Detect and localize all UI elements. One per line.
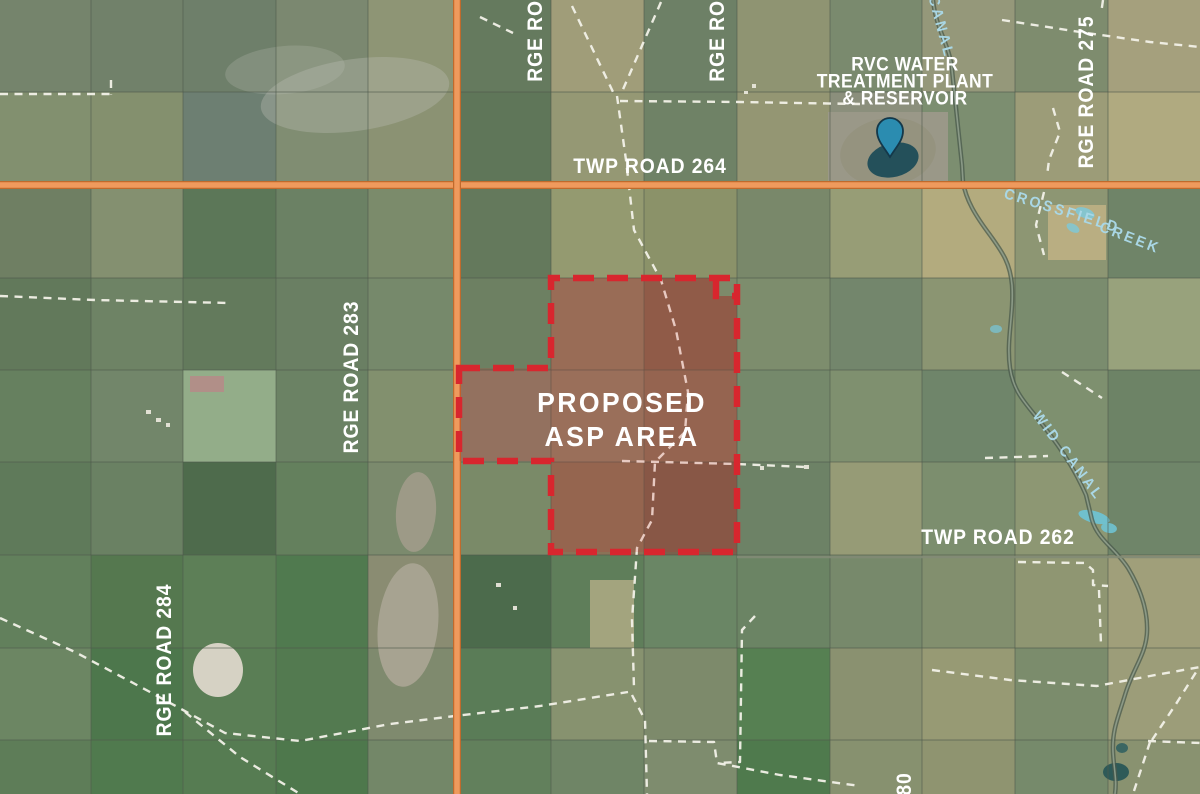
field-parcel (922, 648, 1015, 740)
field-parcel (1108, 648, 1200, 740)
label-rge-road-top-left: RGE ROAD (524, 0, 548, 82)
field-parcel (0, 555, 91, 648)
field-parcel (830, 370, 922, 462)
field-parcel (456, 185, 551, 278)
field-parcel (91, 185, 183, 278)
field-parcel (1015, 740, 1108, 794)
field-parcel (276, 740, 368, 794)
field-parcel (830, 648, 922, 740)
field-parcel (183, 462, 276, 555)
field-parcel (1108, 555, 1200, 648)
field-parcel (276, 555, 368, 648)
terrain-blob (990, 325, 1002, 333)
label-twp-road-264: TWP ROAD 264 (573, 155, 726, 179)
label-rge-road-top-right: RGE ROAD (706, 0, 730, 82)
farmstead-dot (166, 423, 170, 427)
label-rvc-water-treatment: RVC WATER TREATMENT PLANT & RESERVOIR (817, 57, 994, 108)
field-parcel (91, 92, 183, 185)
field-parcel (737, 185, 830, 278)
farmstead-dot (496, 583, 501, 587)
field-parcel (551, 740, 644, 794)
field-parcel (737, 462, 830, 555)
rvc-line-3: & RESERVOIR (817, 91, 994, 108)
field-parcel (456, 92, 551, 185)
field-parcel (830, 278, 922, 370)
field-parcel (276, 462, 368, 555)
terrain-patch (590, 580, 634, 648)
field-parcel (183, 185, 276, 278)
label-rge-road-bottom-fragment: 80 (893, 772, 917, 794)
field-parcel (922, 370, 1015, 462)
field-parcel (0, 0, 91, 92)
satellite-map[interactable]: TWP ROAD 264 TWP ROAD 262 RGE ROAD 283 R… (0, 0, 1200, 794)
field-parcel (830, 185, 922, 278)
terrain-patch (190, 376, 224, 392)
field-parcel (1108, 462, 1200, 555)
field-parcel (91, 0, 183, 92)
field-parcel (0, 740, 91, 794)
field-parcel (368, 740, 456, 794)
field-parcel (830, 462, 922, 555)
field-parcel (91, 462, 183, 555)
field-parcel (1015, 648, 1108, 740)
field-parcel (644, 185, 737, 278)
asp-line-2: ASP AREA (537, 420, 707, 454)
field-parcel (456, 462, 551, 555)
field-parcel (737, 555, 830, 648)
farmstead-dot (156, 418, 161, 422)
field-parcel (0, 278, 91, 370)
field-parcel (91, 740, 183, 794)
field-parcel (183, 740, 276, 794)
field-parcel (830, 555, 922, 648)
farmstead-dot (744, 91, 748, 94)
field-parcel (91, 278, 183, 370)
field-parcel (0, 185, 91, 278)
label-twp-road-262: TWP ROAD 262 (921, 526, 1074, 550)
field-parcel (183, 555, 276, 648)
field-parcel (551, 648, 644, 740)
field-parcel (1108, 92, 1200, 185)
field-parcel (1108, 278, 1200, 370)
terrain-blob (193, 643, 243, 697)
field-parcel (922, 555, 1015, 648)
field-parcel (737, 370, 830, 462)
farmstead-dot (804, 465, 809, 469)
field-parcel (368, 185, 456, 278)
field-parcel (644, 648, 737, 740)
field-parcel (276, 648, 368, 740)
field-parcel (368, 278, 456, 370)
field-parcel (737, 278, 830, 370)
field-parcel (456, 278, 551, 370)
field-parcel (91, 370, 183, 462)
terrain-blob (1116, 743, 1128, 753)
label-proposed-asp-area: PROPOSED ASP AREA (537, 386, 707, 454)
field-parcel (1108, 0, 1200, 92)
label-rge-road-284: RGE ROAD 284 (153, 584, 177, 737)
field-parcel (456, 648, 551, 740)
label-rge-road-283: RGE ROAD 283 (340, 301, 364, 454)
field-parcel (183, 278, 276, 370)
field-parcel (922, 740, 1015, 794)
field-parcel (276, 185, 368, 278)
asp-line-1: PROPOSED (537, 386, 707, 420)
farmstead-dot (760, 466, 764, 470)
field-parcel (0, 462, 91, 555)
field-parcel (737, 648, 830, 740)
field-parcel (737, 740, 830, 794)
field-parcel (368, 370, 456, 462)
field-parcel (0, 648, 91, 740)
field-parcel (1015, 555, 1108, 648)
field-parcel (644, 555, 737, 648)
field-parcel (456, 555, 551, 648)
farmstead-dot (752, 84, 756, 88)
field-parcel (1108, 370, 1200, 462)
field-parcel (1015, 278, 1108, 370)
farmstead-dot (513, 606, 517, 610)
field-parcel (551, 0, 644, 92)
farmstead-dot (146, 410, 151, 414)
field-parcel (0, 92, 91, 185)
field-parcel (0, 370, 91, 462)
field-parcel (922, 278, 1015, 370)
field-parcel (456, 740, 551, 794)
label-rge-road-275: RGE ROAD 275 (1075, 16, 1099, 169)
field-parcel (644, 740, 737, 794)
